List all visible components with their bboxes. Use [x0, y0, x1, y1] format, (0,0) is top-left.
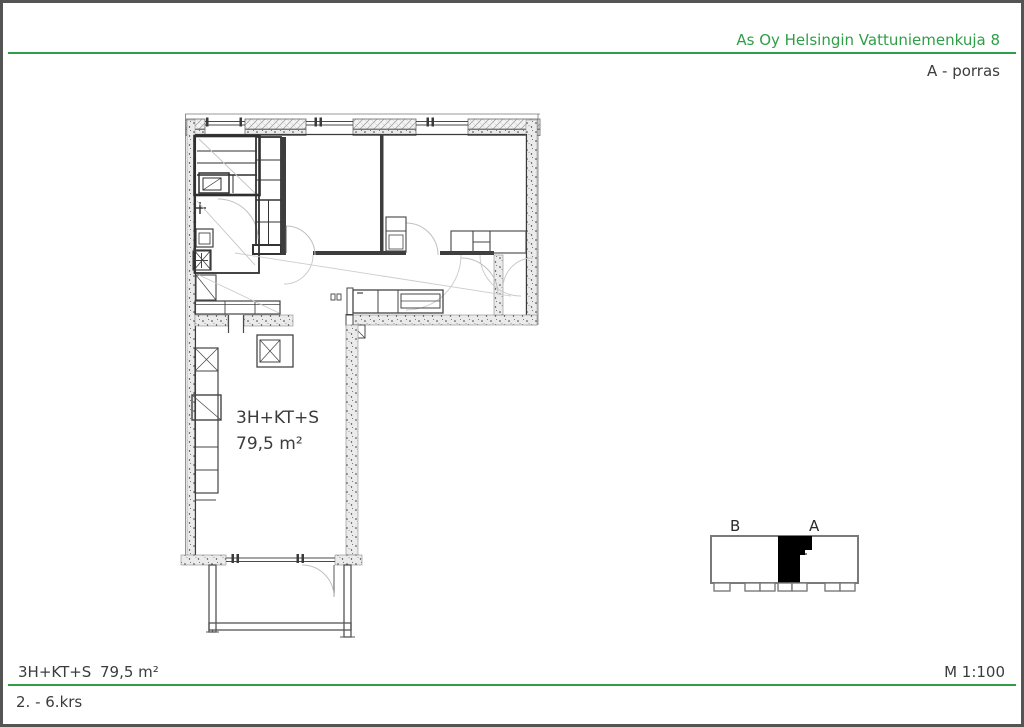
apartment-area-label: 79,5 m² — [236, 434, 303, 454]
interior-concrete-wall — [494, 255, 503, 315]
floors-label: 2. - 6.krs — [16, 693, 82, 711]
bathroom — [194, 195, 259, 273]
livingroom-bottom-wall — [181, 554, 362, 565]
kitchen-livingroom-wall — [195, 315, 293, 333]
bedroom-walls — [281, 134, 494, 255]
floor-plan-drawing — [3, 3, 1024, 727]
footer-divider — [8, 684, 1016, 686]
dining-bottom-wall — [346, 315, 537, 339]
footer-apartment-type: 3H+KT+S — [18, 663, 91, 681]
key-plan-label-a: A — [809, 517, 819, 535]
livingroom-right-wall — [346, 325, 358, 555]
dining-kitchen-counter — [331, 288, 443, 315]
livingroom-left-cabinets — [192, 348, 221, 500]
key-plan — [711, 536, 858, 591]
top-wall-windows — [205, 118, 468, 127]
balcony — [206, 565, 355, 637]
key-plan-balconies — [714, 583, 855, 591]
apartment-type-label: 3H+KT+S — [236, 408, 319, 428]
bedroom2-furniture — [386, 217, 526, 253]
key-plan-label-b: B — [730, 517, 740, 535]
scale-label: M 1:100 — [944, 663, 1005, 681]
right-exterior-wall — [526, 114, 538, 325]
sauna — [195, 136, 260, 195]
kitchen-hall — [193, 251, 280, 314]
kitchen-island — [257, 335, 293, 367]
floor-plan-page: As Oy Helsingin Vattuniemenkuja 8 A - po… — [0, 0, 1024, 727]
footer-area: 79,5 m² — [100, 663, 159, 681]
